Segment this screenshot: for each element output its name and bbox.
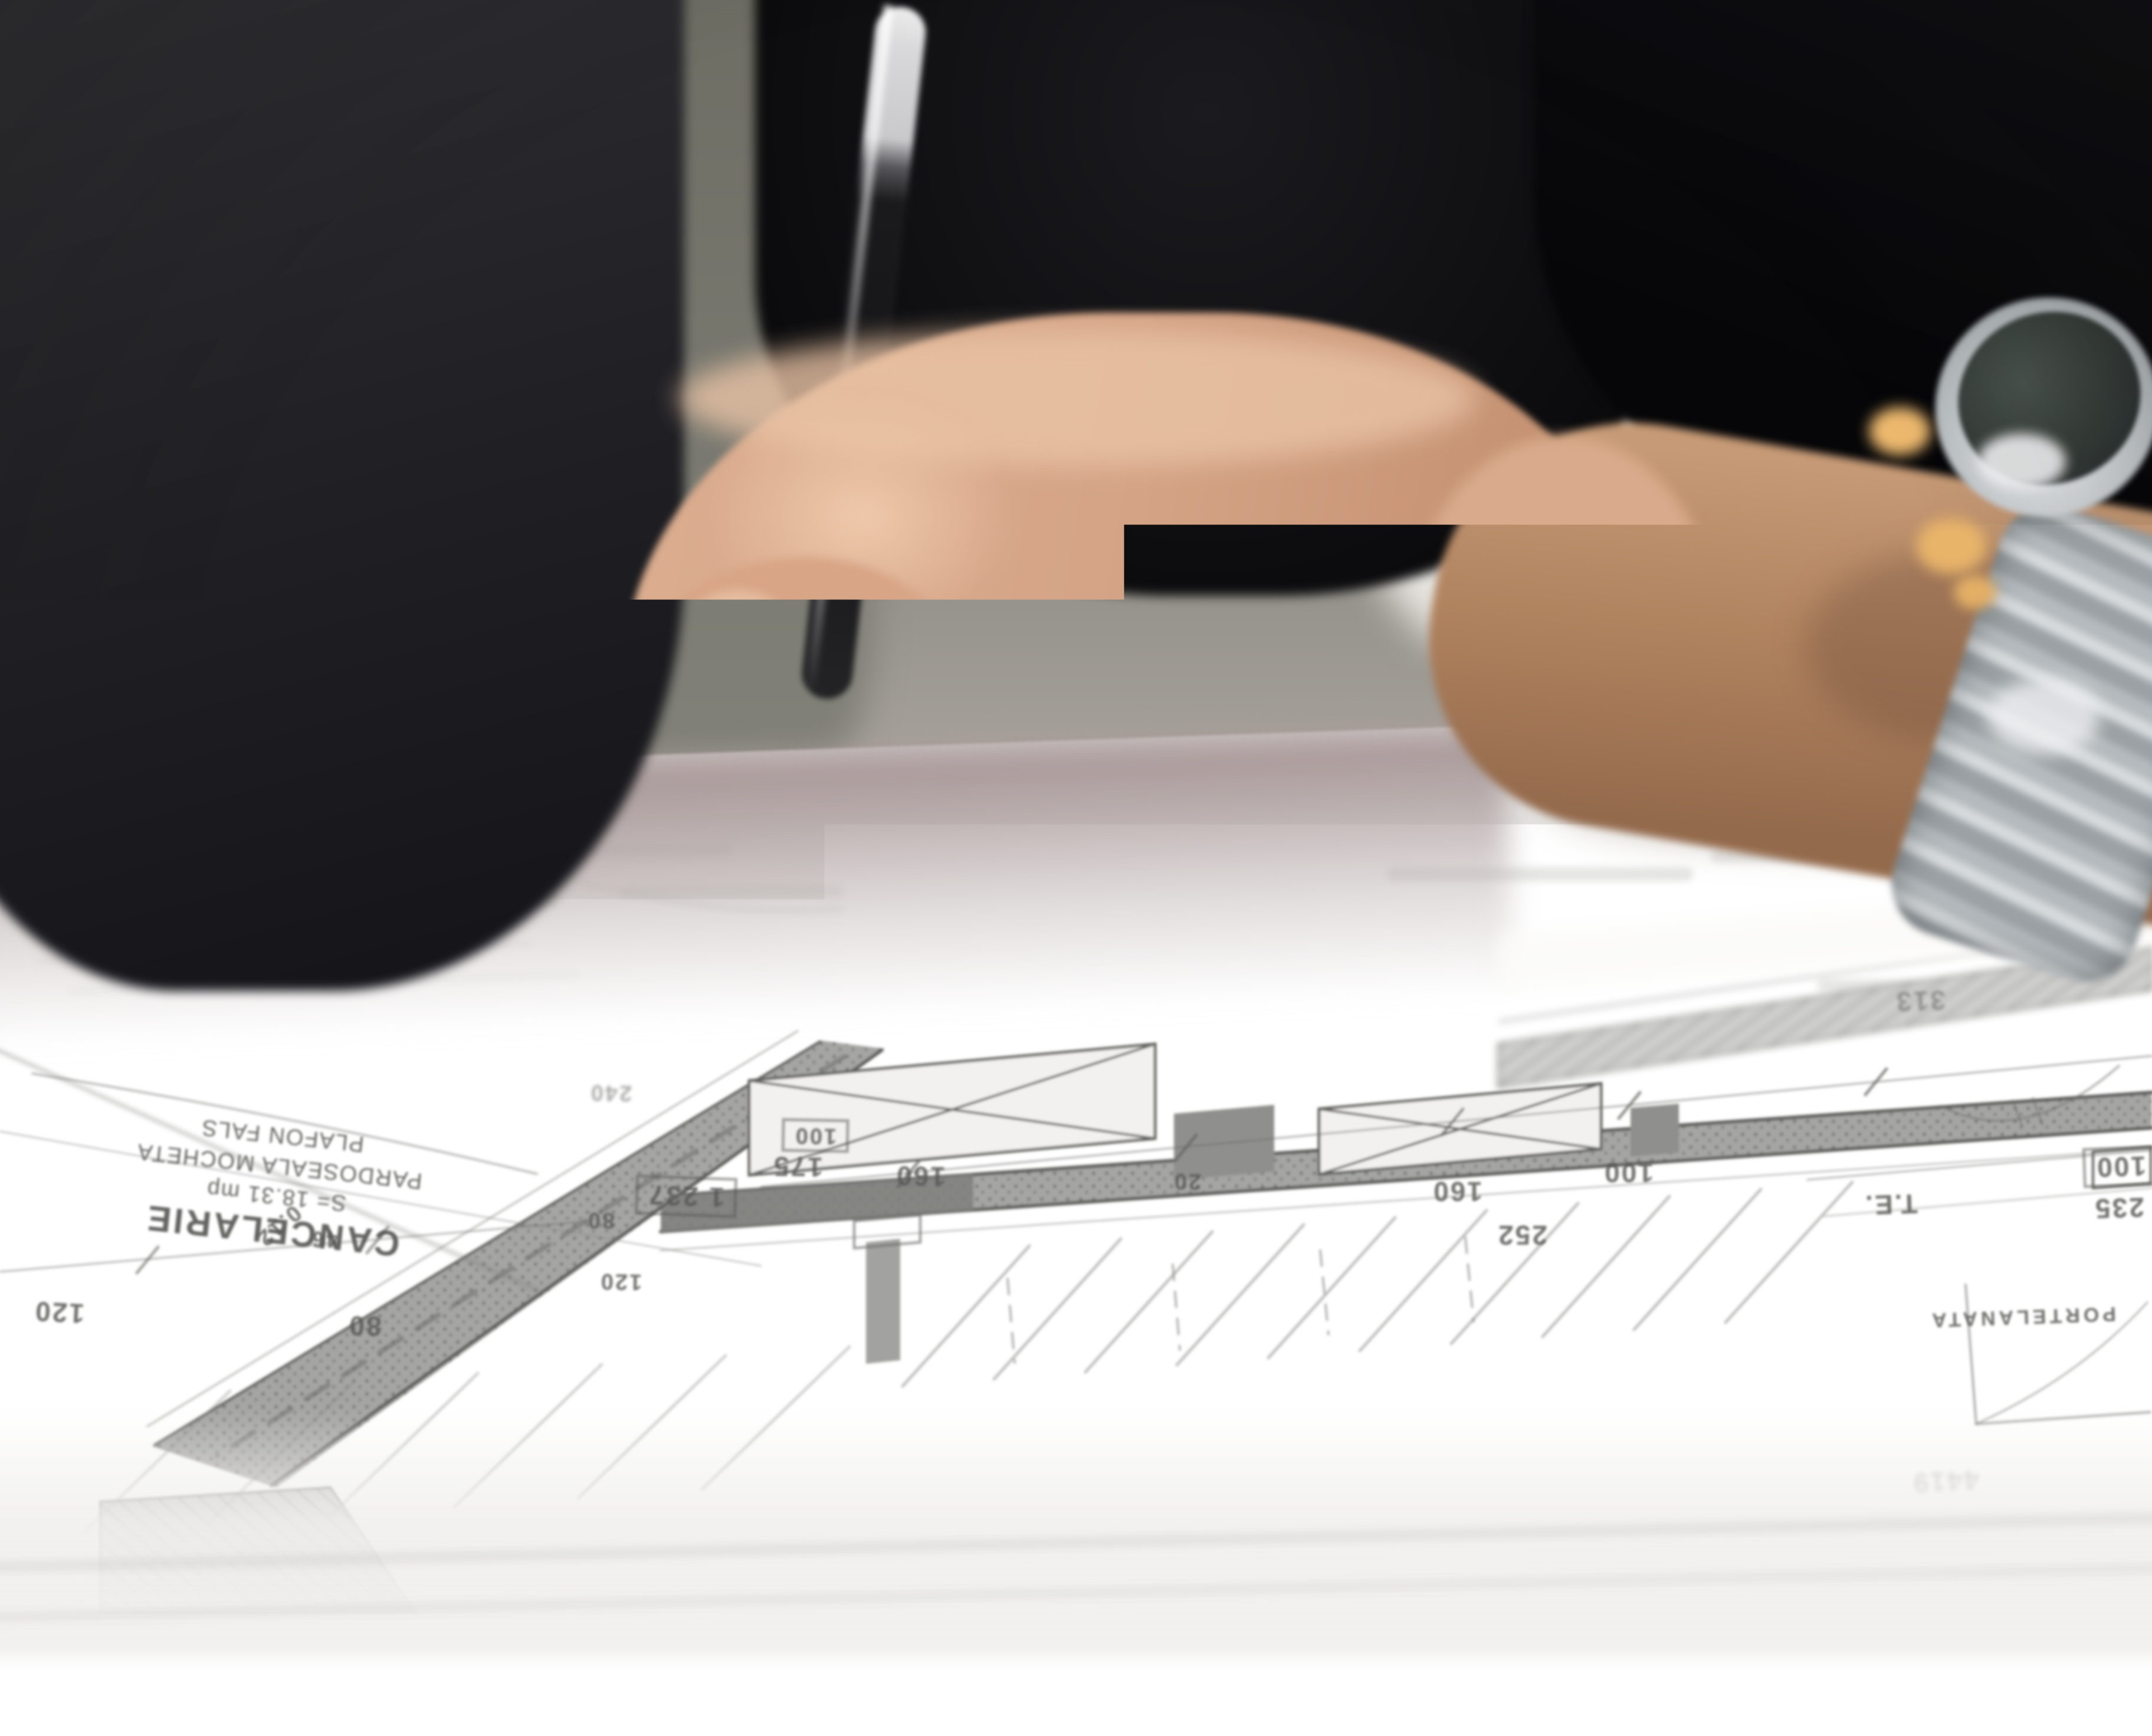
vignette: [0, 0, 2152, 1614]
